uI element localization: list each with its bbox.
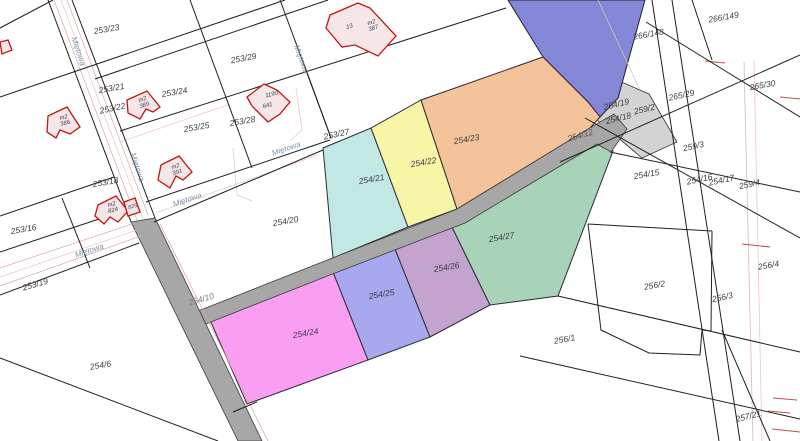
- parcel-label-253-16: 253/16: [9, 222, 38, 237]
- parcel-label-253-19: 253/19: [20, 276, 49, 293]
- parcel-label-256-3: 256/3: [710, 290, 734, 304]
- street-label-mietowa-0: Miętowa: [69, 36, 87, 68]
- cadastral-map[interactable]: 253/21253/23253/29253/24253/22253/25253/…: [0, 0, 800, 441]
- parcel-label-253-28: 253/28: [228, 114, 257, 129]
- building-387: [326, 3, 396, 56]
- parcel-label-266-149: 266/149: [706, 9, 739, 24]
- parcel-label-256-4: 256/4: [756, 258, 780, 272]
- building-fragment: [0, 40, 12, 54]
- parcel-label-256-1: 256/1: [552, 332, 576, 346]
- parcel-label-254-20: 254/20: [271, 214, 300, 229]
- cadastral-map-viewport[interactable]: 253/21253/23253/29253/24253/22253/25253/…: [0, 0, 800, 441]
- parcel-label-257-21: 257/21: [733, 408, 762, 424]
- street-label-mietowa-5: Miętowa: [74, 242, 106, 260]
- parcel-label-253-24: 253/24: [160, 85, 189, 100]
- parcel-label-253-29: 253/29: [229, 51, 258, 66]
- street-label-mietowa-3: Miętowa: [172, 190, 204, 208]
- survey-tick-marks: [705, 61, 800, 432]
- street-label-mietowa-2: Miętowa: [128, 152, 146, 184]
- parcel-label-254-15: 254/15: [632, 167, 661, 182]
- parcel-label-253-22: 253/22: [98, 100, 127, 115]
- parcel-label-265-29: 265/29: [667, 87, 696, 102]
- parcel-label-265-30: 265/30: [748, 78, 777, 93]
- parcel-label-253-23: 253/23: [92, 22, 121, 37]
- parcel-label-259-3: 259/3: [681, 139, 705, 153]
- street-label-mietowa-1: Miętowa: [292, 44, 311, 76]
- parcel-label-253-21: 253/21: [97, 81, 126, 96]
- parcel-label-253-25: 253/25: [182, 120, 211, 135]
- parcel-label-254-6: 254/6: [88, 358, 112, 372]
- parcel-label-256-2: 256/2: [642, 278, 666, 292]
- parcel-label-253-18: 253/18: [91, 175, 120, 190]
